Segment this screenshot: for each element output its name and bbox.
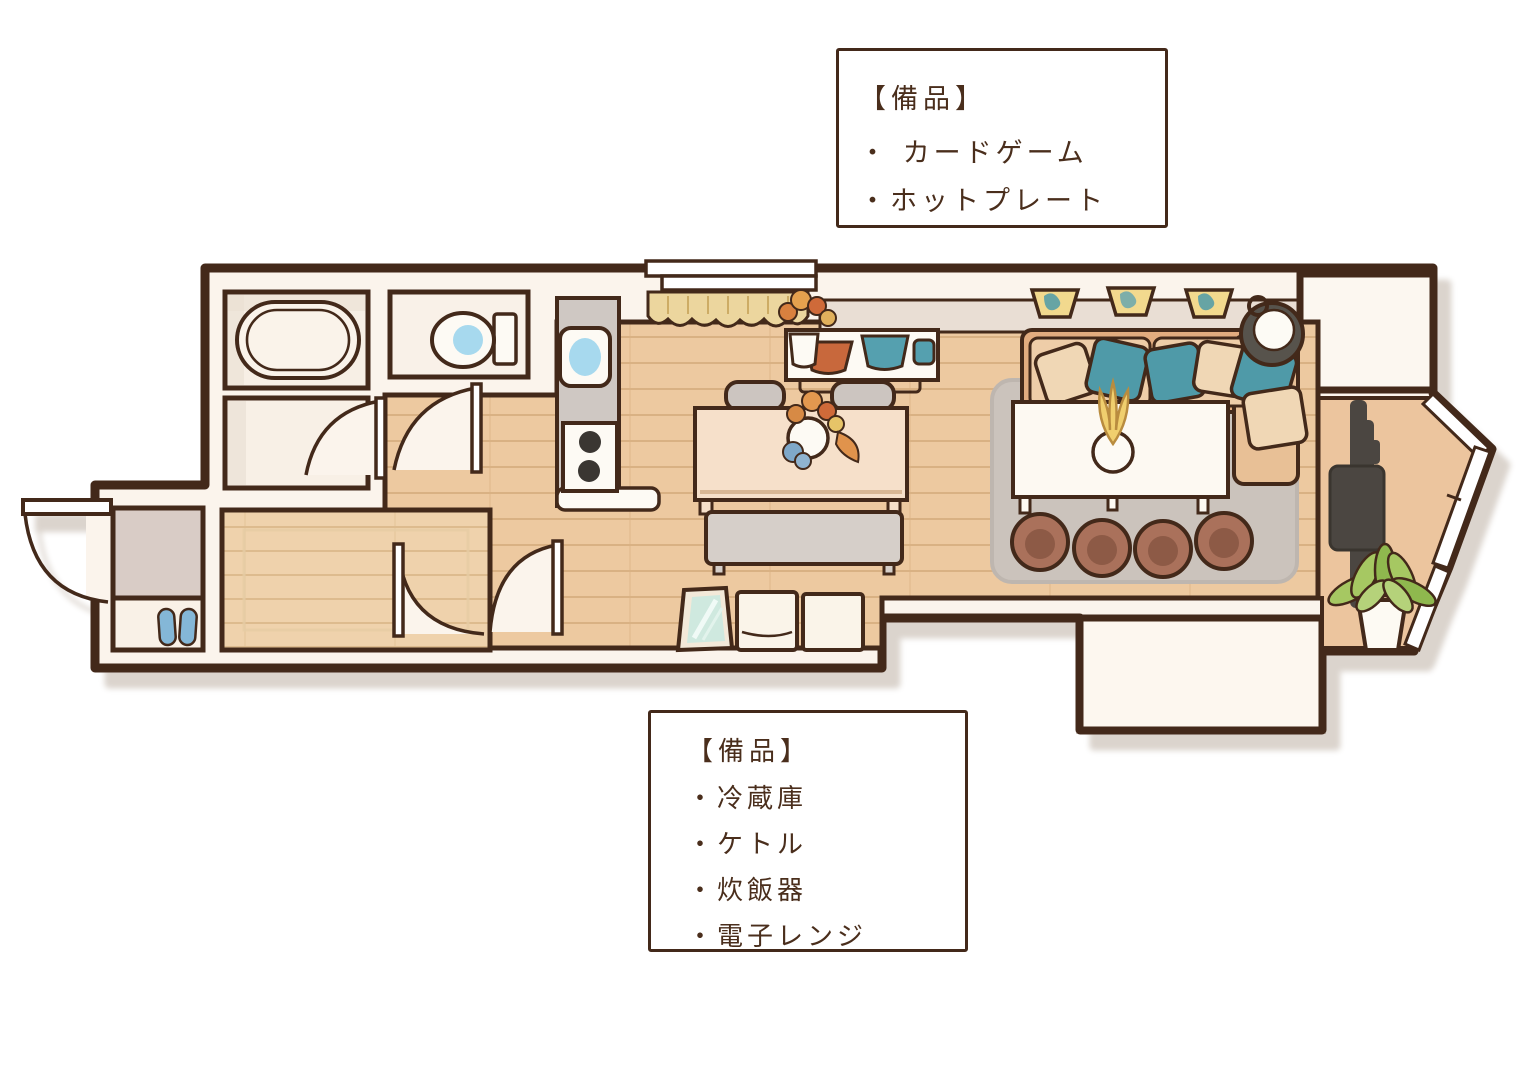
dining-chair [832, 382, 894, 410]
entrance-door [23, 500, 111, 602]
equipment-item: ・冷蔵庫 [687, 776, 965, 822]
mirror [678, 588, 732, 650]
bowl-teal [862, 336, 908, 370]
equipment-item: ・ケトル [687, 822, 965, 868]
equipment-item: ・電子レンジ [687, 914, 965, 960]
dining-chair [726, 382, 784, 410]
equipment-box-top: 【備品】 ・ カードゲーム ・ホットプレート [836, 48, 1168, 228]
bathroom [225, 292, 368, 388]
kitchen-sink [560, 328, 610, 386]
equipment-item: ・ホットプレート [859, 178, 1165, 226]
cup-teal [914, 340, 934, 364]
bump-out [1080, 618, 1322, 730]
equipment-box-top-title: 【備品】 [859, 77, 1165, 116]
equipment-item: ・ カードゲーム [859, 130, 1165, 178]
gas-stove [563, 423, 617, 491]
equipment-box-bottom: 【備品】 ・冷蔵庫 ・ケトル ・炊飯器 ・電子レンジ [648, 710, 968, 952]
floor-plan-page: 【備品】 ・ カードゲーム ・ホットプレート 【備品】 ・冷蔵庫 ・ケトル ・炊… [0, 0, 1522, 1076]
bathtub [237, 302, 359, 378]
dining-set [695, 382, 907, 574]
equipment-item: ・炊飯器 [687, 868, 965, 914]
entrance [113, 508, 203, 650]
equipment-box-bottom-title: 【備品】 [687, 731, 965, 768]
entrance-tile [113, 508, 203, 600]
kitchen-window [646, 261, 816, 290]
toilet [432, 313, 516, 367]
living-table [1013, 382, 1228, 513]
planters [1032, 288, 1232, 317]
toilet-room [390, 292, 528, 377]
bench [706, 512, 902, 564]
